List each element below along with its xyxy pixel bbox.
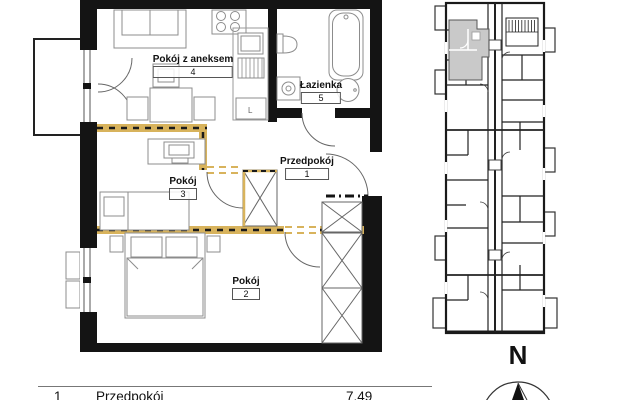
compass-rose (482, 374, 554, 400)
room-number: 3 (169, 188, 197, 200)
wardrobes (243, 170, 362, 343)
room-number: 1 (285, 168, 329, 180)
room-name: Pokój (232, 276, 260, 287)
wardrobe-hall-right (322, 202, 362, 232)
double-bed (110, 233, 220, 318)
room-label-pokoj-2: Pokój 2 (232, 276, 260, 300)
room-label-pokoj-3: Pokój 3 (169, 176, 197, 200)
pillow (131, 237, 162, 257)
toilet (277, 34, 297, 53)
area-table-divider (38, 386, 432, 387)
room-number: 4 (153, 66, 233, 78)
area-row-name: Przedpokój (96, 389, 164, 400)
north-label: N (492, 340, 544, 370)
balcony-window (80, 50, 97, 122)
chair (127, 97, 148, 120)
room3-door-arc (207, 172, 243, 208)
pillow (166, 237, 197, 257)
room-label-lazienka: Łazienka 5 (300, 80, 342, 104)
room-name: Łazienka (300, 80, 342, 91)
room-name: Przedpokój (280, 156, 334, 167)
stairwell (506, 18, 538, 46)
room-label-przedpokoj: Przedpokój 1 (280, 156, 334, 180)
wardrobe-hall-left (243, 170, 277, 226)
area-row-value: 7.49 (346, 389, 372, 400)
room-name: Pokój (169, 176, 197, 187)
desk (148, 139, 205, 164)
wardrobe-bedroom (322, 233, 362, 343)
dining-table (150, 88, 192, 122)
bedroom-window (80, 248, 97, 312)
bathroom-door-arc (302, 113, 335, 146)
room-number: 2 (232, 288, 260, 300)
building-overview (432, 0, 566, 338)
apartment-plan-page: L (0, 0, 620, 400)
balcony-door-arc (98, 58, 132, 92)
room2-door-arc (285, 232, 320, 267)
nightstand (110, 236, 123, 252)
room-label-pokoj-z-aneksem: Pokój z aneksem 4 (153, 54, 234, 78)
bedroom-window-sill (66, 252, 80, 308)
balcony (34, 39, 85, 135)
bathtub (329, 10, 363, 80)
fridge-label: L (248, 106, 253, 115)
sofa (114, 10, 186, 48)
area-table-row: 1 Przedpokój 7.49 (0, 389, 440, 400)
area-row-number: 1 (54, 389, 62, 400)
room-name: Pokój z aneksem (153, 54, 234, 65)
stove-icon (212, 10, 246, 34)
washing-machine (277, 77, 300, 100)
room-number: 5 (301, 92, 341, 104)
chair (194, 97, 215, 120)
kitchen-counter: L (233, 28, 268, 120)
nightstand (207, 236, 220, 252)
